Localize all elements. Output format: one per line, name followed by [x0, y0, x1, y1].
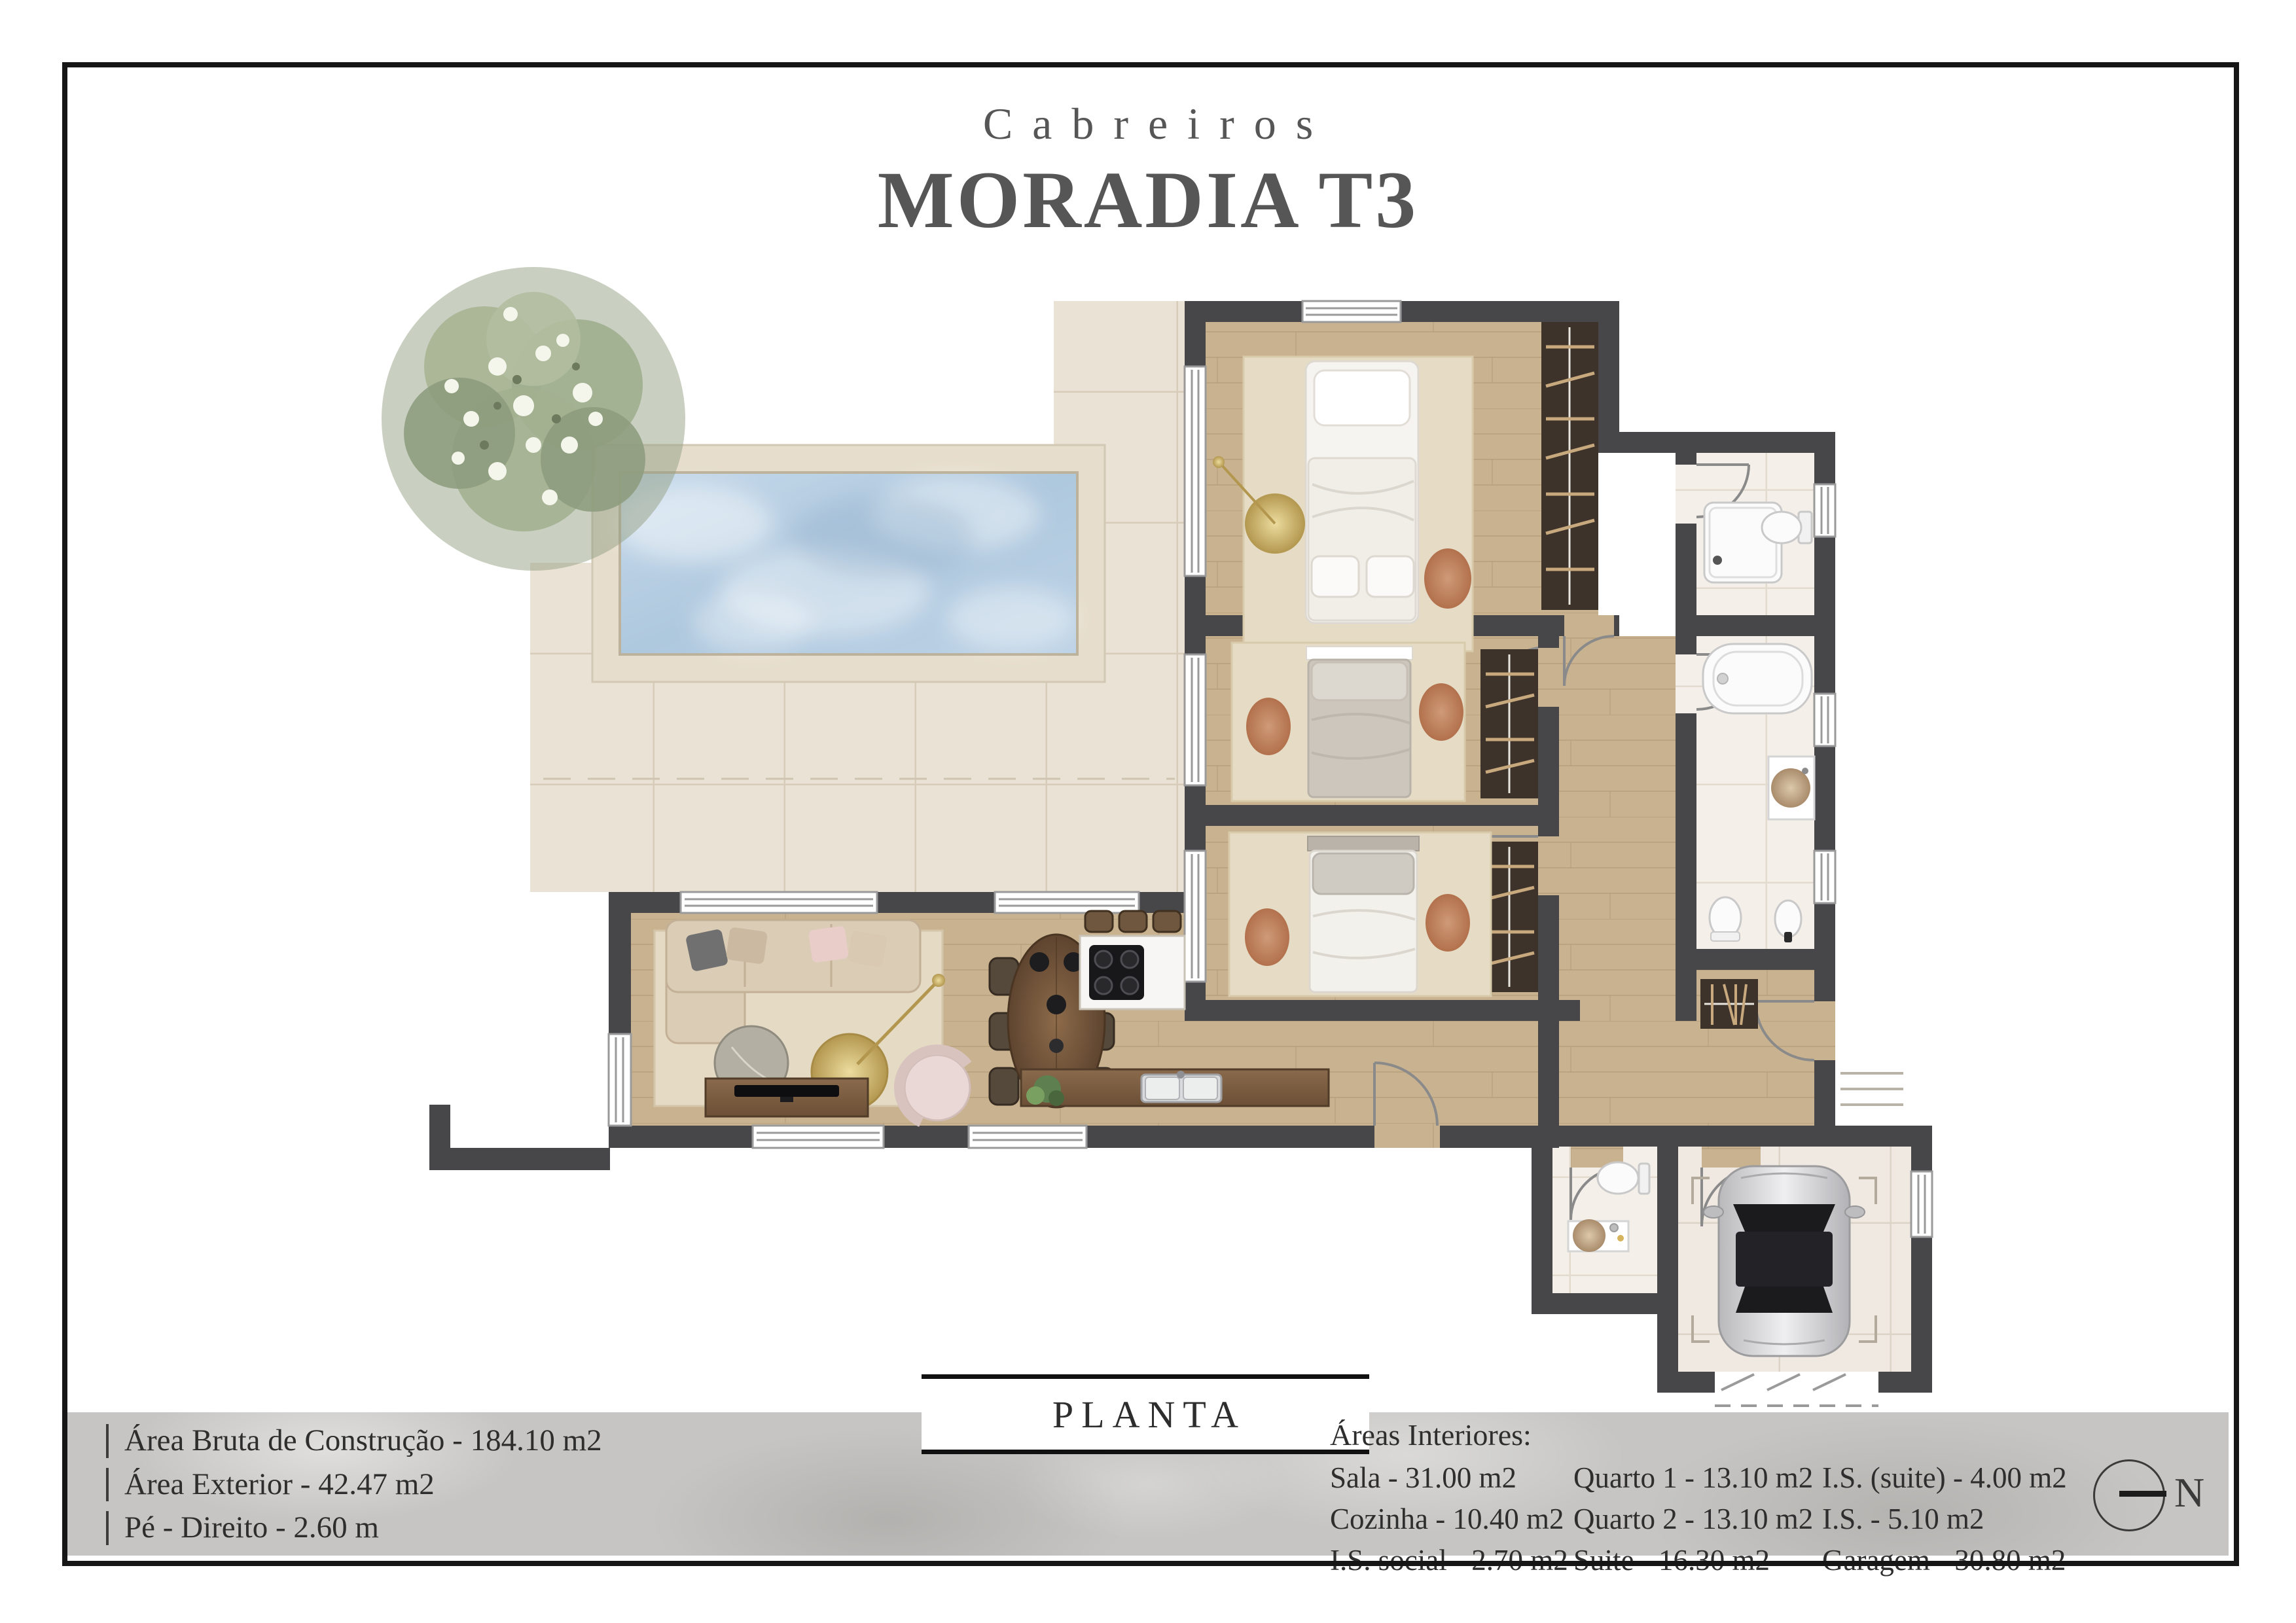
- interior-areas-title: Áreas Interiores:: [1330, 1418, 2067, 1452]
- page-title: MORADIA T3: [0, 154, 2296, 247]
- quarto1-furniture: [1213, 357, 1473, 651]
- north-arrow-icon: [2119, 1491, 2166, 1497]
- plan-label-box: PLANTA: [922, 1374, 1369, 1454]
- garage: [1693, 1166, 1876, 1356]
- kitchen-counter-icon: [1021, 1069, 1329, 1106]
- pouf-icon: [1424, 548, 1471, 609]
- wardrobe-icon: [1480, 649, 1538, 798]
- pouf-icon: [1246, 698, 1291, 755]
- entry-closet-icon: [1700, 979, 1758, 1029]
- quarto2-furniture: [1232, 643, 1465, 801]
- area-sala: Sala - 31.00 m2: [1330, 1457, 1573, 1499]
- bathtub-icon: [1703, 644, 1812, 713]
- entrance-steps: [1840, 1073, 1903, 1105]
- interior-areas: Áreas Interiores: Sala - 31.00 m2 Quarto…: [1330, 1418, 2067, 1581]
- bed-icon: [1308, 836, 1419, 992]
- pouf-icon: [1426, 894, 1470, 952]
- plan-label: PLANTA: [1045, 1393, 1246, 1436]
- exterior-specs: Área Bruta de Construção - 184.10 m2 Áre…: [106, 1424, 602, 1555]
- north-label: N: [2174, 1469, 2204, 1517]
- area-quarto2: Quarto 2 - 13.10 m2: [1573, 1499, 1822, 1540]
- area-is-social: I.S. social - 2.70 m2: [1330, 1540, 1573, 1581]
- tree-icon: [382, 267, 685, 571]
- area-garagem: Garagem - 30.80 m2: [1822, 1540, 2067, 1581]
- toilet-icon: [1598, 1162, 1649, 1194]
- area-cozinha: Cozinha - 10.40 m2: [1330, 1499, 1573, 1540]
- area-is-suite: I.S. (suite) - 4.00 m2: [1822, 1457, 2067, 1499]
- kitchen-island-icon: [1080, 911, 1185, 1009]
- spec-pe-direito: Pé - Direito - 2.60 m: [106, 1511, 602, 1545]
- title-block: Cabreiros MORADIA T3: [0, 0, 2296, 247]
- pouf-icon: [1245, 908, 1289, 966]
- sink-icon: [1568, 1219, 1628, 1252]
- sala-furniture: [655, 920, 988, 1138]
- toilet-icon: [1710, 897, 1741, 941]
- car-icon: [1704, 1166, 1865, 1356]
- suite-furniture: [1229, 832, 1491, 996]
- pouf-icon: [1419, 683, 1463, 741]
- area-quarto1: Quarto 1 - 13.10 m2: [1573, 1457, 1822, 1499]
- area-is: I.S. - 5.10 m2: [1822, 1499, 2067, 1540]
- brand-title: Cabreiros: [0, 98, 2296, 150]
- spec-area-exterior: Área Exterior - 42.47 m2: [106, 1468, 602, 1502]
- area-suite: Suite - 16.30 m2: [1573, 1540, 1822, 1581]
- stool-icon: [1085, 911, 1181, 932]
- bed-icon: [1306, 361, 1418, 623]
- bed-icon: [1306, 647, 1412, 797]
- wardrobe-icon: [1541, 322, 1598, 610]
- spec-area-bruta: Área Bruta de Construção - 184.10 m2: [106, 1424, 602, 1458]
- sink-icon: [1768, 757, 1814, 819]
- tv-console-icon: [706, 1079, 868, 1116]
- toilet-icon: [1762, 512, 1812, 543]
